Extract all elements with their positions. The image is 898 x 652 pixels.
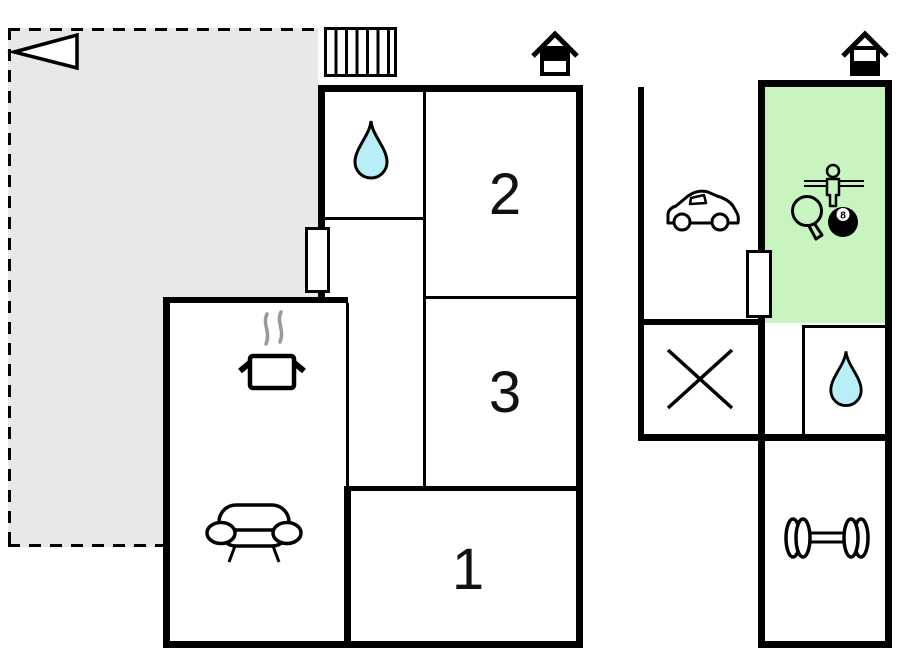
wall [163,297,170,648]
terrace-border-bottom [8,544,164,547]
terrace-border-top [8,28,318,31]
wall [802,325,805,434]
dumbbell-icon [780,509,874,567]
billiard-eight-ball-icon: 8 [828,207,858,237]
stairs-icon [324,27,397,77]
wall [638,87,644,441]
cross-icon [666,348,734,410]
wall [885,80,892,648]
wall [325,217,426,220]
chimney-icon [842,32,888,78]
sofa-icon [204,502,304,568]
svg-text:8: 8 [840,211,846,222]
water-drop-icon [351,118,391,180]
wall [638,319,765,325]
water-drop-icon [827,348,865,408]
game-room-icons: 8 [786,160,864,242]
cooking-pot-icon [236,310,308,392]
wall [423,92,426,491]
terrace-border-left [8,28,11,547]
wall [638,434,892,441]
wall [346,303,349,486]
wall [576,85,583,648]
wall [163,297,348,303]
wall [805,325,885,328]
room-3-label: 3 [470,356,540,430]
wall [163,641,583,648]
wall [344,486,351,641]
table-tennis-icon [793,197,823,240]
car-icon [660,185,744,231]
terrace-lower [8,297,163,547]
room-2-label: 2 [470,158,540,232]
wall [758,641,892,648]
room-1-label: 1 [433,533,503,607]
wall [758,80,892,87]
wall [318,85,583,92]
chimney-icon [532,32,578,78]
floor-plan: 2 3 1 [0,0,898,652]
foosball-icon [804,165,864,206]
entrance-arrow-icon [12,33,79,71]
wall [758,80,765,648]
door [305,227,330,293]
wall [349,486,576,491]
wall [426,296,576,299]
door [746,250,772,318]
